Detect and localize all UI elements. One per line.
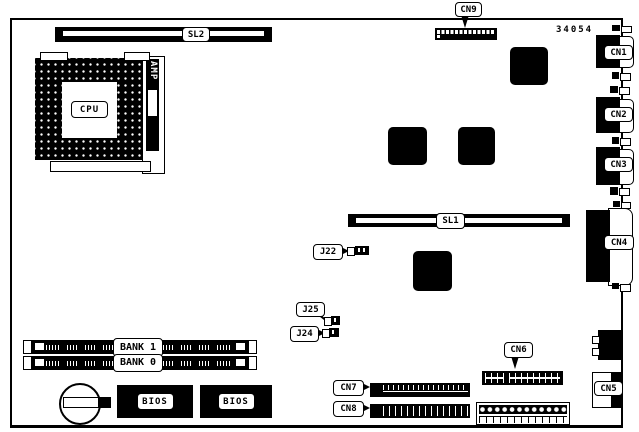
amp-regulator-window <box>147 89 158 117</box>
bank1-latch <box>34 342 45 351</box>
connector-cn9-label: CN9 <box>455 2 482 17</box>
memory-bank-0: BANK 0 <box>23 356 257 370</box>
bios-right-label: BIOS <box>218 393 255 410</box>
mounting-tab <box>621 202 631 209</box>
ic-chip <box>510 47 548 85</box>
jumper-j22 <box>355 246 369 255</box>
cn6-key-gap <box>504 371 509 385</box>
bank0-latch <box>34 358 45 367</box>
ic-chip <box>388 127 427 165</box>
mounting-tab <box>620 138 631 146</box>
jumper-j25 <box>331 316 340 325</box>
mounting-tab <box>612 72 619 79</box>
bios-left-label: BIOS <box>137 393 174 410</box>
din-connector <box>598 330 623 360</box>
slot-sl1: SL1 <box>348 214 570 227</box>
connector-cn3-label: CN3 <box>604 157 633 172</box>
motherboard-diagram: SL2 CPU AMP CN9 34054 CN1 CN2 <box>0 0 639 432</box>
cpu-socket-base <box>50 161 151 172</box>
connector-cn4-label: CN4 <box>604 235 634 250</box>
mounting-tab <box>619 188 630 196</box>
connector-cn7 <box>370 383 470 397</box>
cpu-socket: CPU <box>35 58 143 160</box>
mounting-tab <box>621 26 632 33</box>
battery-clip <box>63 397 111 408</box>
bank0-end-cap <box>248 357 256 369</box>
bank1-end-cap <box>24 341 32 353</box>
power-connector <box>476 402 570 425</box>
jumper-j22-pin <box>347 247 355 256</box>
mounting-tab <box>613 201 620 207</box>
mounting-tab <box>620 284 631 292</box>
jumper-j24 <box>329 328 339 337</box>
mounting-tab <box>612 137 619 144</box>
connector-cn2-label: CN2 <box>604 107 633 122</box>
amp-regulator: AMP <box>142 56 165 174</box>
bank0-latch <box>235 358 246 367</box>
cpu-die: CPU <box>62 82 117 138</box>
connector-cn1-label: CN1 <box>604 45 633 60</box>
din-connector-tab <box>592 336 600 344</box>
connector-cn6-label: CN6 <box>504 342 533 358</box>
bank0-end-cap <box>24 357 32 369</box>
bank0-label: BANK 0 <box>113 354 163 372</box>
bank1-end-cap <box>248 341 256 353</box>
ic-chip <box>413 251 452 291</box>
din-connector-tab <box>592 348 600 356</box>
power-connector-pins <box>479 405 567 414</box>
mounting-tab <box>610 187 618 195</box>
connector-cn8-label: CN8 <box>333 401 364 417</box>
bios-chip-right: BIOS <box>200 385 272 418</box>
mounting-tab <box>619 87 630 95</box>
ic-chip <box>458 127 495 165</box>
cpu-socket-tab <box>40 52 68 61</box>
connector-cn8 <box>370 404 470 418</box>
slot-sl1-label: SL1 <box>436 213 465 229</box>
mounting-tab <box>612 283 619 289</box>
power-connector-sockets <box>479 416 567 423</box>
memory-bank-1: BANK 1 <box>23 340 257 354</box>
mounting-tab <box>610 86 618 93</box>
jumper-j25-label: J25 <box>296 302 325 317</box>
jumper-j22-label: J22 <box>313 244 343 260</box>
part-number: 34054 <box>556 25 593 35</box>
slot-sl2-label: SL2 <box>182 27 210 42</box>
amp-label: AMP <box>146 59 158 80</box>
connector-cn9 <box>435 28 497 40</box>
bank1-latch <box>235 342 246 351</box>
bios-chip-left: BIOS <box>117 385 193 418</box>
cpu-socket-tab <box>124 52 150 61</box>
slot-sl2: SL2 <box>55 27 272 42</box>
connector-cn6 <box>482 371 563 385</box>
jumper-j24-label: J24 <box>290 326 319 342</box>
mounting-tab <box>620 73 631 81</box>
mounting-tab <box>612 25 620 31</box>
cpu-label: CPU <box>71 101 108 118</box>
connector-cn5-label: CN5 <box>594 381 623 396</box>
connector-cn7-label: CN7 <box>333 380 364 396</box>
